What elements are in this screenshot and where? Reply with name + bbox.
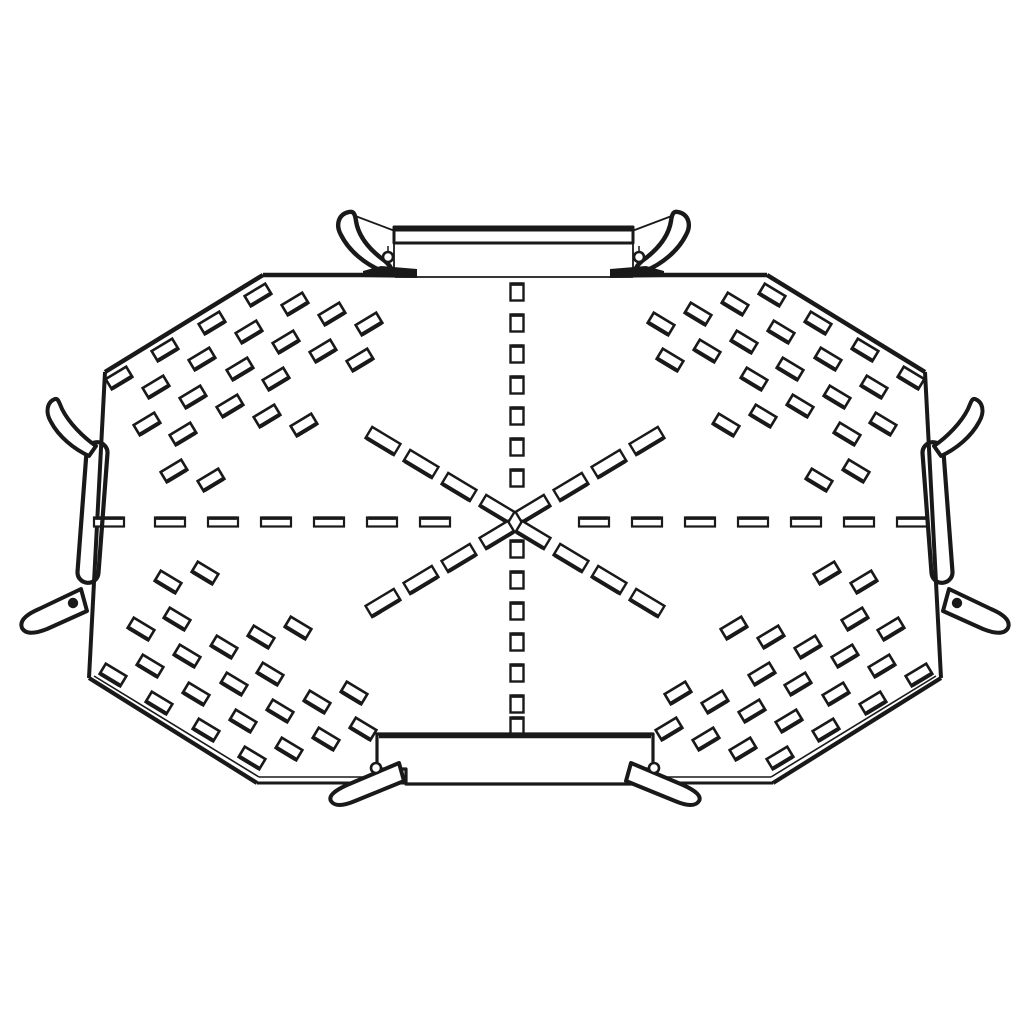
technical-drawing [0, 0, 1030, 1030]
top-coupler [338, 212, 689, 278]
left-connector [21, 399, 108, 633]
center-dash-cross [94, 284, 927, 735]
right-connector [922, 399, 1009, 633]
illustration-page [0, 0, 1030, 1030]
bottom-coupler [330, 734, 699, 805]
